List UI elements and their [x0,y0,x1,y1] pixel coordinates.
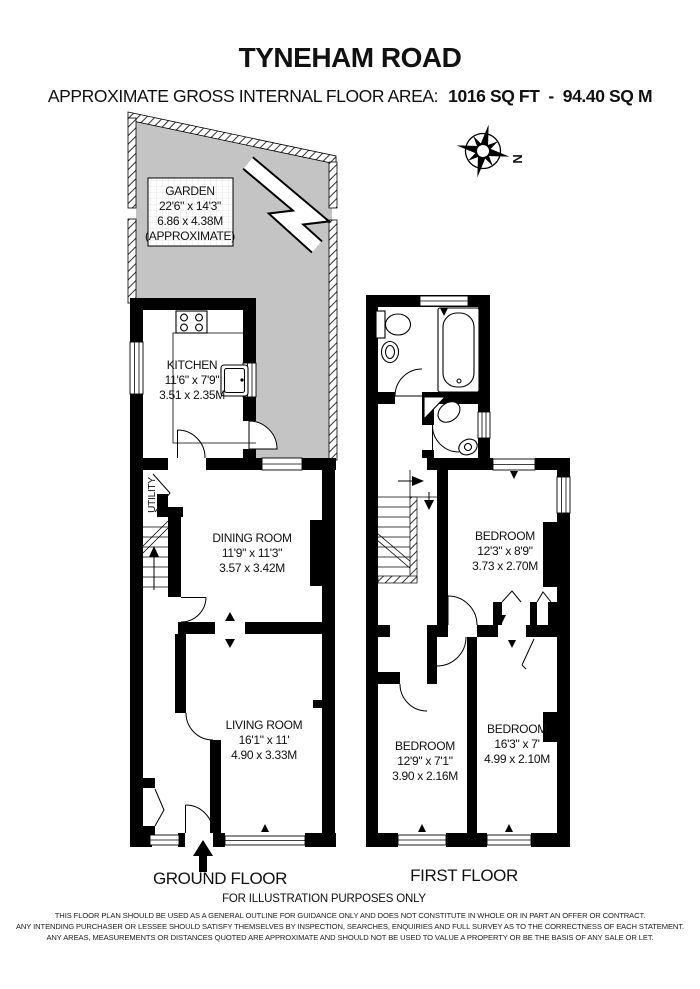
sink-icon [221,365,248,396]
garden-dims-metric: 6.86 x 4.38M [157,214,223,228]
disclaimer-line-3: ANY AREAS, MEASUREMENTS OR DISTANCES QUO… [0,933,700,944]
bedroom3-name: BEDROOM [487,722,547,736]
first-floor-caption: FIRST FLOOR [410,866,518,885]
disclaimer: THIS FLOOR PLAN SHOULD BE USED AS A GENE… [0,911,700,943]
utility-label: UTILITY [147,477,158,513]
toilet-icon [376,311,411,338]
bathtub-icon [438,308,479,392]
entrance-arrow-icon [193,840,213,872]
living-name: LIVING ROOM [226,718,303,732]
bedroom2-name: BEDROOM [395,739,455,753]
bedroom3-dims-imperial: 16'3" x 7' [494,737,539,751]
disclaimer-line-2: ANY INTENDING PURCHASER OR LESSEE SHOULD… [0,922,700,933]
garden-name: GARDEN [165,184,215,198]
compass-icon: N [451,119,525,183]
ground-floor-stairs-icon [140,521,168,590]
living-room-label: LIVING ROOM 16'1" x 11' 4.90 x 3.33M [226,718,303,762]
basin-icon [382,342,399,363]
bedroom2-label: BEDROOM 12'9" x 7'1" 3.90 x 2.16M [392,739,458,783]
dining-room-label: DINING ROOM 11'9" x 11'3" 3.57 x 3.42M [212,531,292,575]
garden-label-box: GARDEN 22'6" x 14'3" 6.86 x 4.38M (APPRO… [145,178,235,246]
living-dims-imperial: 16'1" x 11' [239,733,290,747]
floor-plan-svg: GARDEN 22'6" x 14'3" 6.86 x 4.38M (APPRO… [0,0,700,989]
dining-name: DINING ROOM [212,531,292,545]
ground-floor-caption: GROUND FLOOR [153,869,287,888]
dining-dims-imperial: 11'9" x 11'3" [222,546,282,560]
kitchen-name: KITCHEN [167,358,218,372]
bedroom1-label: BEDROOM 12'3" x 8'9" 3.73 x 2.70M [472,529,538,573]
first-floor-stairs-icon [377,470,440,583]
first-floor-plan: BEDROOM 12'3" x 8'9" 3.73 x 2.70M BEDROO… [366,295,570,847]
compass-north-label: N [510,154,525,163]
disclaimer-line-1: THIS FLOOR PLAN SHOULD BE USED AS A GENE… [0,911,700,922]
wc-basin-icon [456,436,480,458]
stove-icon [176,311,207,333]
bedroom1-dims-imperial: 12'3" x 8'9" [477,544,533,558]
bedroom1-name: BEDROOM [475,529,535,543]
kitchen-label: KITCHEN 11'6" x 7'9" 3.51 x 2.35M [159,358,225,402]
bedroom3-dims-metric: 4.99 x 2.10M [484,752,550,766]
floorplan-page: TYNEHAM ROAD APPROXIMATE GROSS INTERNAL … [0,0,700,989]
dining-dims-metric: 3.57 x 3.42M [219,561,285,575]
bedroom2-dims-imperial: 12'9" x 7'1" [397,754,453,768]
kitchen-dims-metric: 3.51 x 2.35M [159,388,225,402]
living-dims-metric: 4.90 x 3.33M [231,748,297,762]
garden-note: (APPROXIMATE) [145,229,235,243]
bedroom1-dims-metric: 3.73 x 2.70M [472,559,538,573]
garden-dims-imperial: 22'6" x 14'3" [159,199,221,213]
bedroom3-label: BEDROOM 16'3" x 7' 4.99 x 2.10M [484,722,550,766]
illustration-note: FOR ILLUSTRATION PURPOSES ONLY [222,893,426,905]
garden-area: GARDEN 22'6" x 14'3" 6.86 x 4.38M (APPRO… [128,112,337,460]
bedroom2-dims-metric: 3.90 x 2.16M [392,769,458,783]
kitchen-dims-imperial: 11'6" x 7'9" [165,373,220,387]
